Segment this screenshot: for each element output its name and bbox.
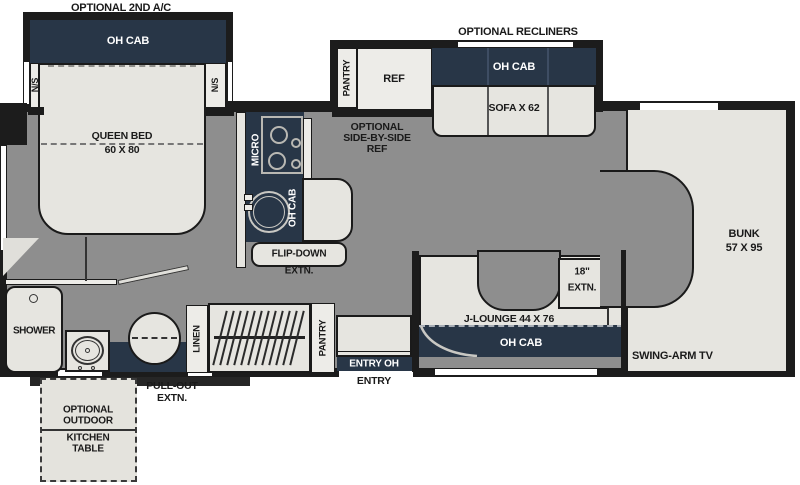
galley-slide-right-wall [596, 40, 603, 112]
entry-label: ENTRY [357, 375, 391, 387]
bunk-size-label: 57 X 95 [726, 242, 763, 254]
entry-oh-label: ENTRY OH [349, 359, 399, 370]
bedroom-hall-divider [85, 237, 87, 281]
galley-slide-window [458, 42, 573, 48]
bath-wall [5, 279, 117, 285]
ns-right-label: N/S [210, 78, 220, 92]
stove-burner-small-1 [291, 138, 301, 148]
pull-out-label: PULL-OUT [146, 380, 197, 392]
rv-floorplan: OPTIONAL 2ND A/C OH CAB N/S N/S QUEEN BE… [0, 0, 800, 485]
ref-label: REF [383, 73, 404, 85]
sofa-oh-divider-1 [487, 48, 489, 85]
linen-label: LINEN [192, 325, 203, 353]
lounge-left-wall [412, 251, 419, 372]
top-right-window [640, 103, 718, 110]
kitchen-oh-cab-label: OH CAB [288, 189, 299, 227]
counter-sliver [303, 118, 312, 180]
vanity-knob-2 [91, 366, 95, 370]
lounge-oh-cab-label: OH CAB [500, 337, 542, 349]
outdoor-table-line [41, 429, 136, 431]
lounge-bunk-wall [621, 250, 626, 372]
flip-down-label: FLIP-DOWN [272, 249, 327, 260]
toilet-dashes [132, 337, 177, 339]
bed-head-dashes [48, 65, 196, 67]
sofa-divider-2 [547, 87, 549, 135]
lounge-table [477, 250, 561, 311]
outdoor-label-2: OUTDOOR [63, 416, 113, 427]
micro-label: MICRO [251, 134, 262, 166]
stove-burner-small-2 [291, 159, 301, 169]
kitchen-faucet-b [244, 204, 253, 211]
hall-pantry-label: PANTRY [318, 320, 329, 357]
outdoor-label-4: TABLE [72, 444, 104, 455]
sofa-oh-cab-label: OH CAB [493, 61, 535, 73]
flip-down-extn-label: EXTN. [285, 266, 313, 277]
shower-label: SHOWER [13, 326, 55, 337]
shower-drain [29, 294, 38, 303]
pull-out-extn-label: EXTN. [157, 392, 187, 404]
swing-arm-tv-label: SWING-ARM TV [632, 350, 713, 362]
optional-ref-line3: REF [367, 143, 387, 155]
top-wall-center [227, 101, 337, 112]
bedroom-window-left [24, 62, 29, 104]
outdoor-label-1: OPTIONAL [63, 405, 113, 416]
bedroom-slide-top-wall [23, 12, 233, 20]
stove-burner-large-1 [270, 126, 288, 144]
bedroom-oh-cab-label: OH CAB [107, 35, 149, 47]
outdoor-label-3: KITCHEN [66, 433, 109, 444]
j-lounge-label: J-LOUNGE 44 X 76 [464, 313, 554, 325]
vanity-knob-1 [78, 366, 82, 370]
cab-floor [600, 170, 694, 308]
bedroom-slide-foot-left [28, 107, 44, 115]
kitchen-faucet-a [244, 194, 253, 201]
extn-18-label: 18" [574, 267, 589, 278]
bed-size-label: 60 X 80 [105, 144, 140, 156]
counter-peninsula [302, 178, 353, 242]
entry-step-line [338, 351, 410, 352]
right-wall [785, 101, 795, 377]
lounge-seat-curve [419, 326, 479, 357]
kitchen-sink-inner [253, 196, 285, 228]
left-wall-window [1, 146, 7, 250]
bedroom-partition-wall [236, 112, 246, 268]
optional-recliners-label: OPTIONAL RECLINERS [458, 26, 578, 38]
galley-slide-left-wall [330, 40, 337, 112]
extn-label: EXTN. [568, 283, 596, 294]
bottom-window-lounge [435, 369, 597, 375]
vanity-drain [85, 348, 90, 353]
bunk-label: BUNK [729, 228, 760, 240]
bedroom-window-right [228, 62, 233, 104]
sofa-label: SOFA X 62 [489, 102, 540, 114]
queen-bed-label: QUEEN BED [92, 130, 153, 142]
stove-burner-large-2 [268, 152, 286, 170]
galley-pantry-label: PANTRY [342, 60, 353, 97]
sofa-oh-divider-2 [547, 48, 549, 85]
